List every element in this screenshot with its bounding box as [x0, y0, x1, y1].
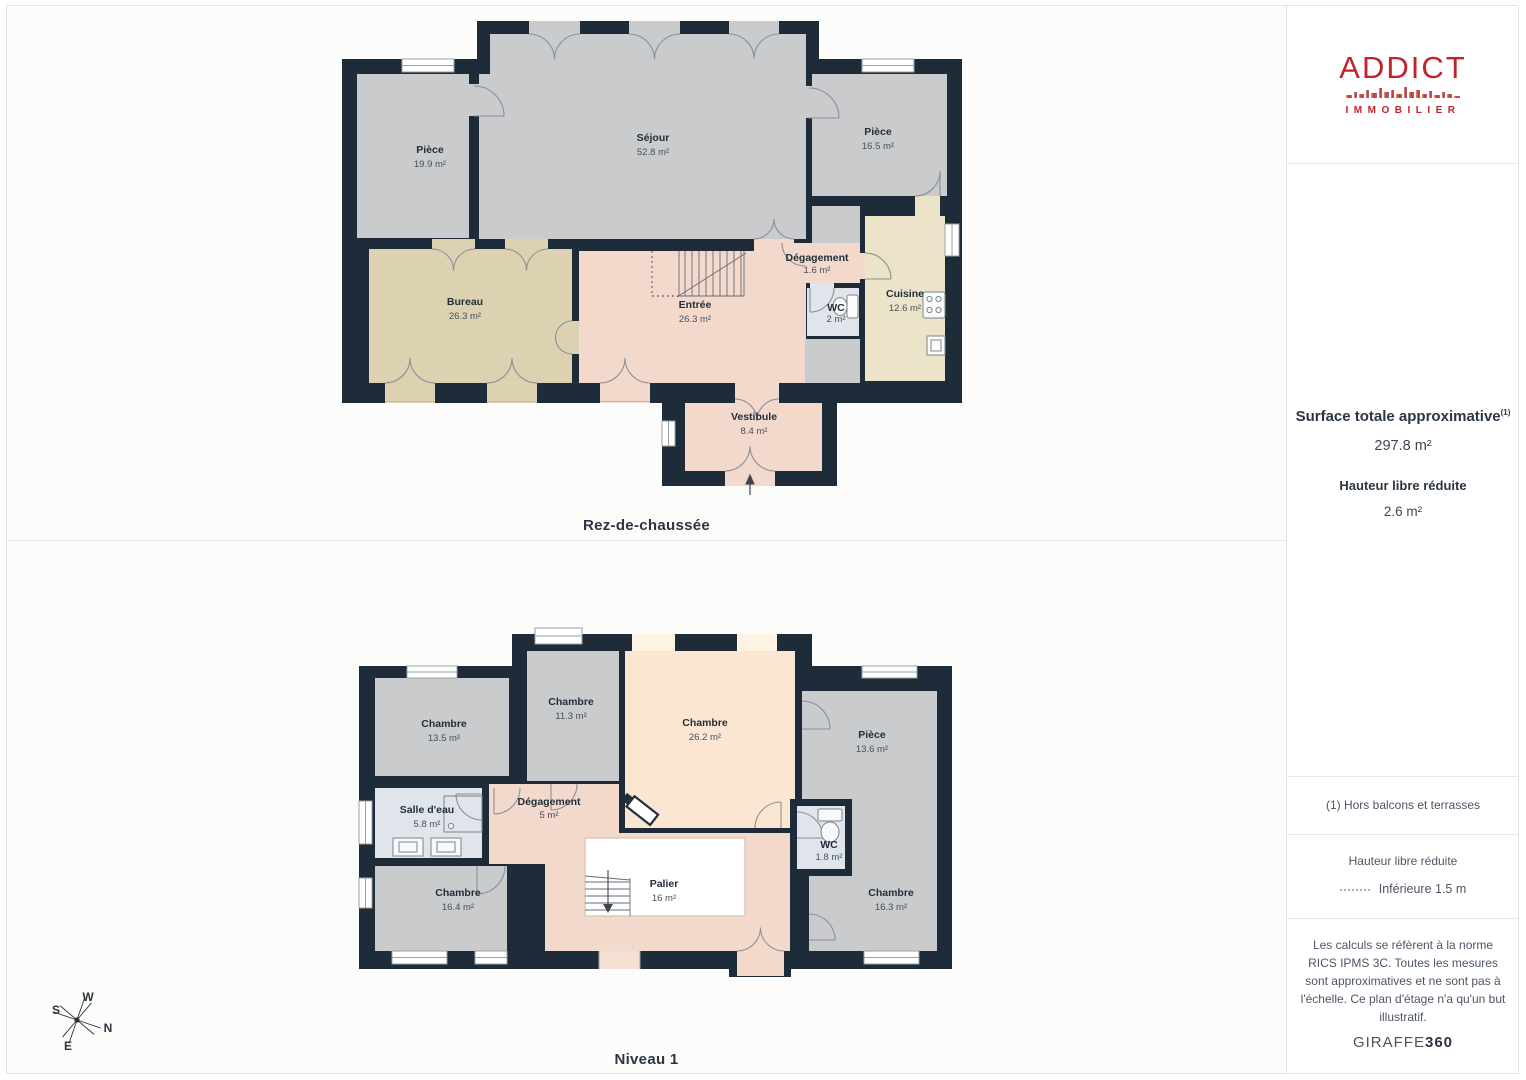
floorplan-page: Pièce 19.9 m² Séjour 52.8 m² Pièce 16.5 …	[0, 0, 1526, 1080]
page-frame	[6, 5, 1519, 1074]
